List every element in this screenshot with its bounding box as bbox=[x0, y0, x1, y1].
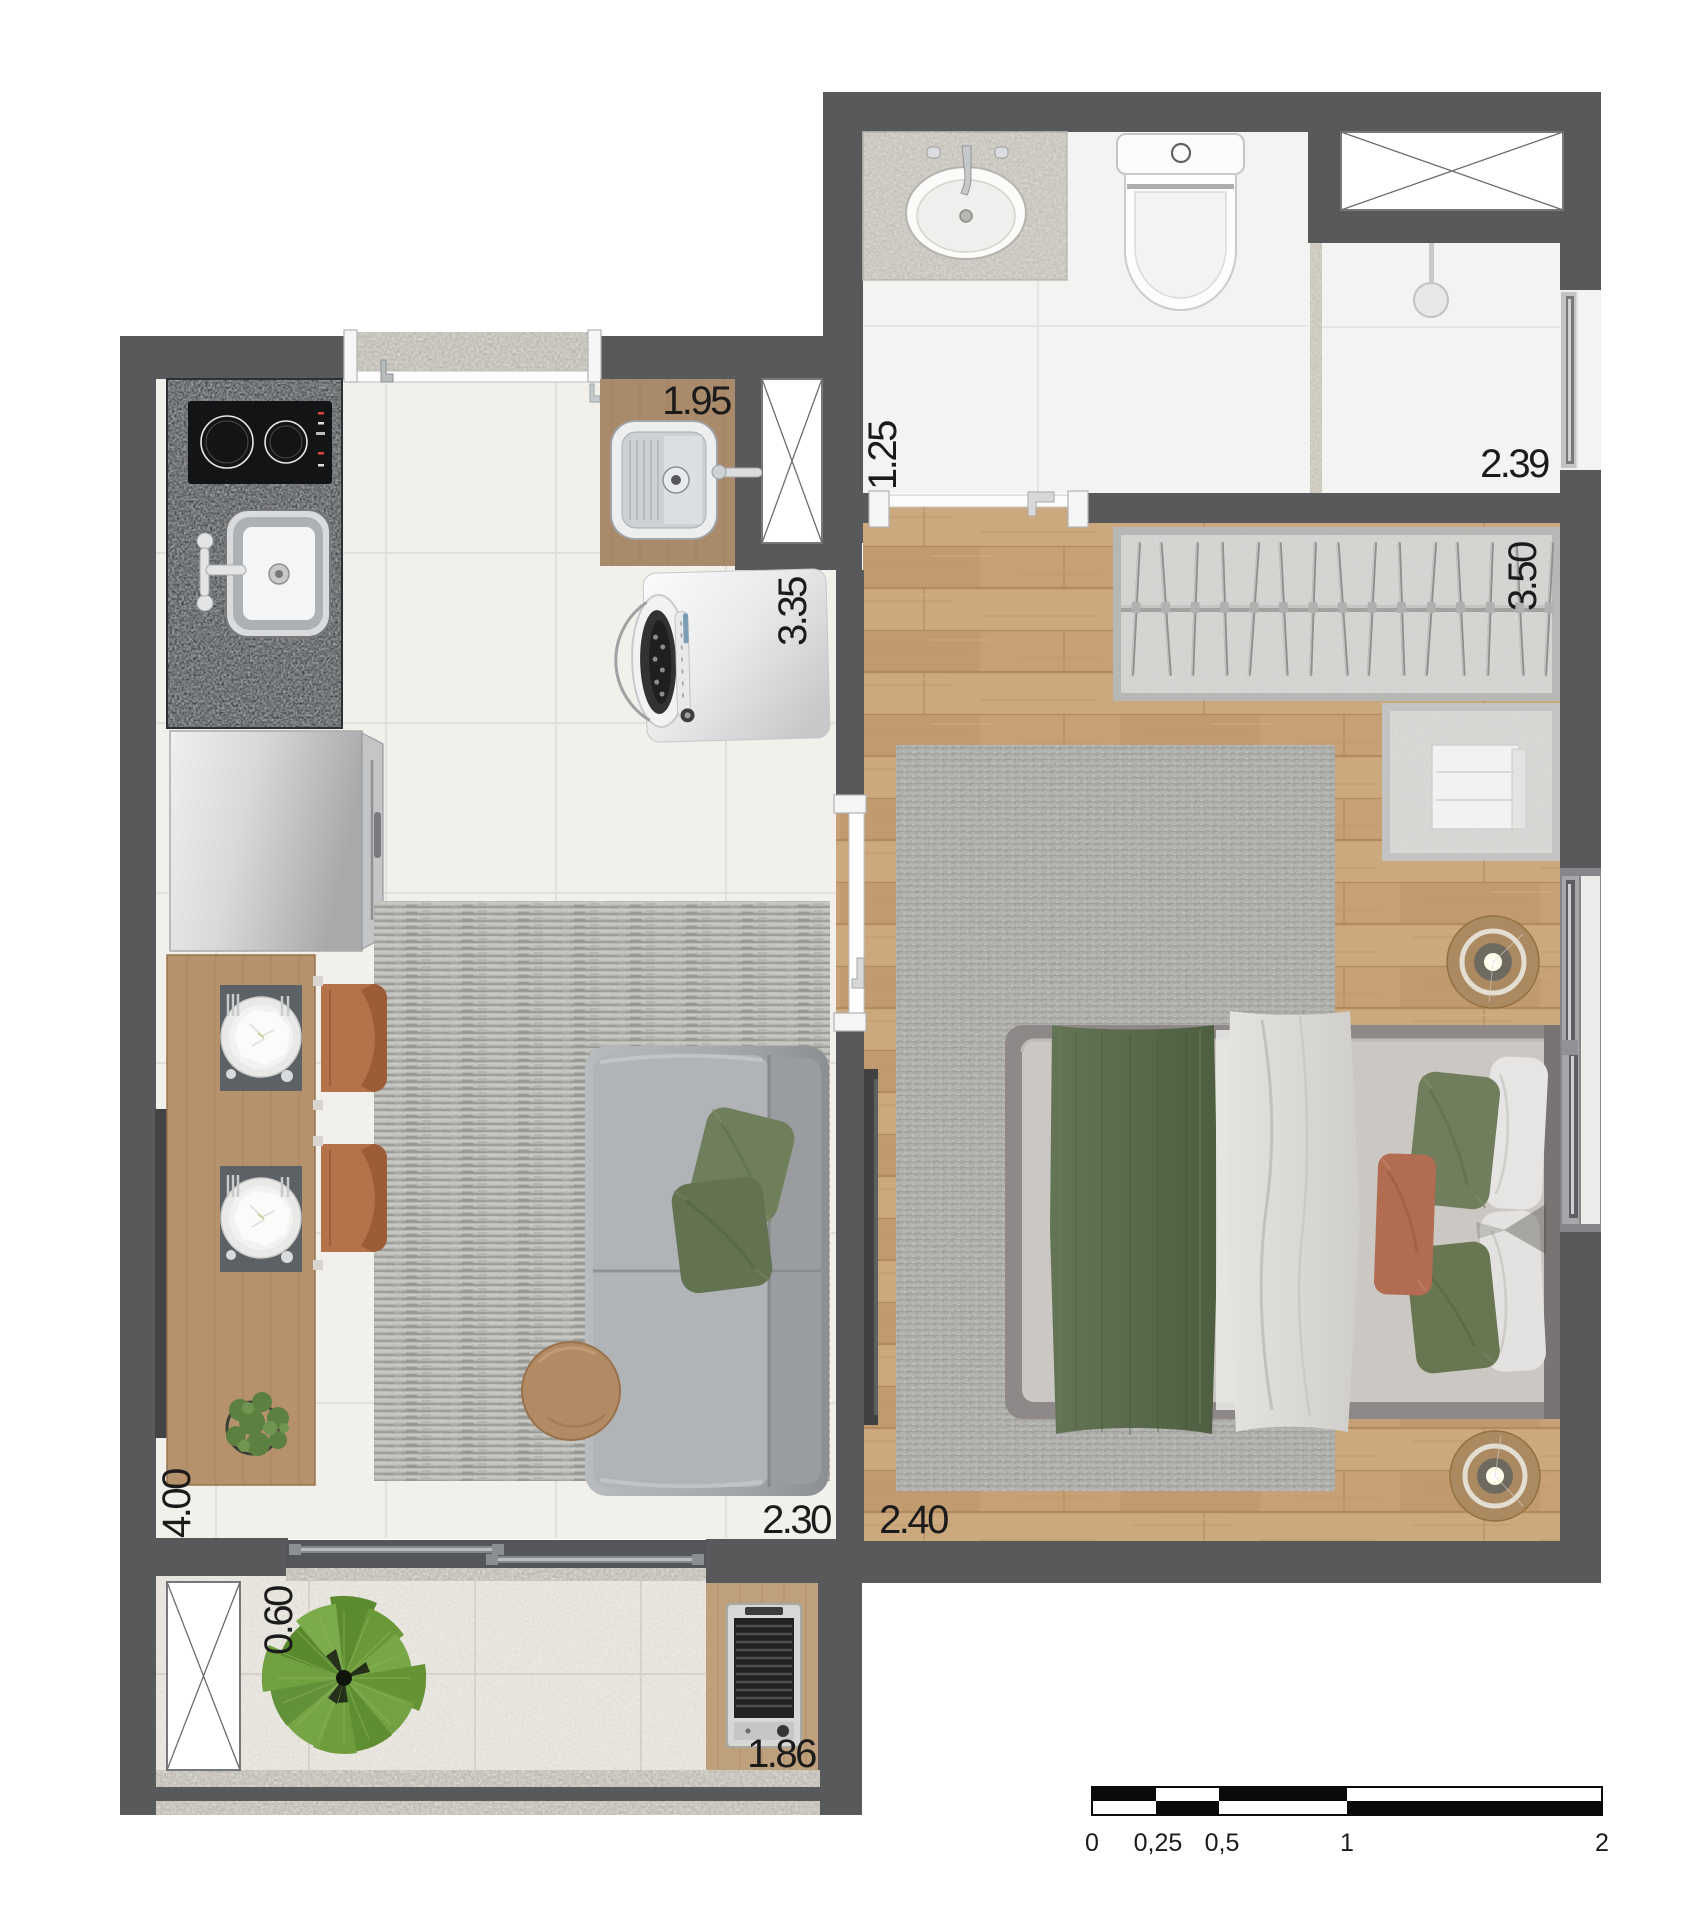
svg-text:2: 2 bbox=[1595, 1829, 1609, 1857]
svg-text:3.50: 3.50 bbox=[1501, 542, 1545, 611]
svg-text:3.35: 3.35 bbox=[771, 577, 815, 646]
svg-text:2.39: 2.39 bbox=[1480, 442, 1549, 486]
svg-text:0,5: 0,5 bbox=[1205, 1829, 1240, 1857]
svg-text:2.40: 2.40 bbox=[879, 1498, 948, 1542]
svg-text:1.86: 1.86 bbox=[747, 1732, 816, 1776]
svg-text:0: 0 bbox=[1085, 1829, 1099, 1857]
svg-text:2.30: 2.30 bbox=[762, 1498, 831, 1542]
svg-text:1: 1 bbox=[1340, 1829, 1354, 1857]
svg-text:0.60: 0.60 bbox=[257, 1586, 301, 1655]
svg-text:0,25: 0,25 bbox=[1134, 1829, 1183, 1857]
svg-text:4.00: 4.00 bbox=[155, 1469, 199, 1538]
svg-text:1.95: 1.95 bbox=[662, 379, 731, 423]
svg-text:1.25: 1.25 bbox=[861, 421, 905, 490]
